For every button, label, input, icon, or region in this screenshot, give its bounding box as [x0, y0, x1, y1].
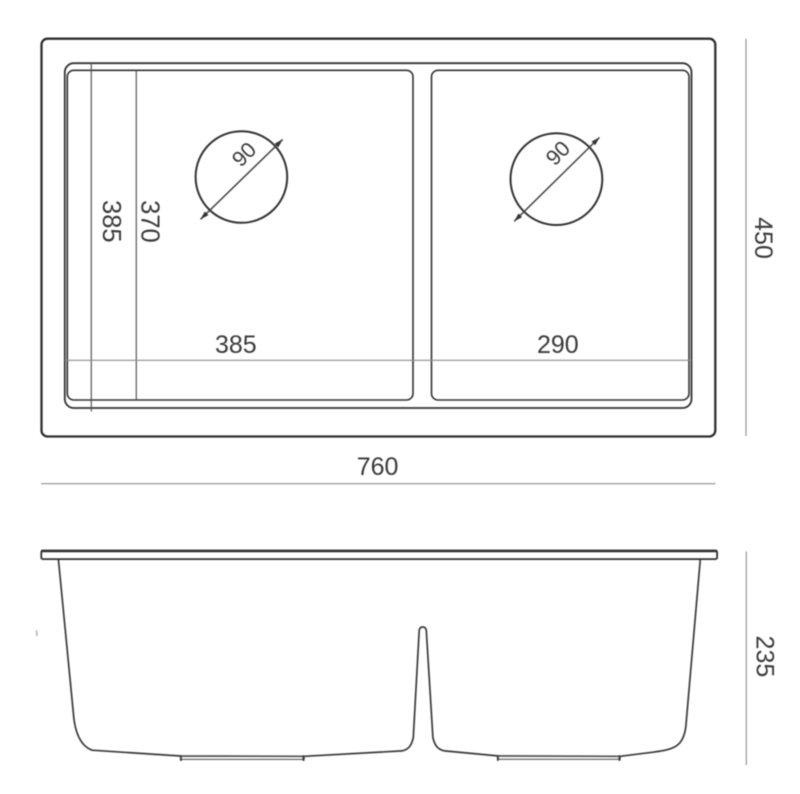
svg-text:370: 370 [135, 200, 163, 243]
svg-text:385: 385 [97, 200, 125, 243]
svg-text:235: 235 [750, 636, 778, 678]
svg-text:760: 760 [357, 453, 399, 481]
svg-text:385: 385 [215, 331, 257, 359]
svg-text:290: 290 [537, 331, 579, 359]
svg-text:450: 450 [749, 217, 777, 259]
